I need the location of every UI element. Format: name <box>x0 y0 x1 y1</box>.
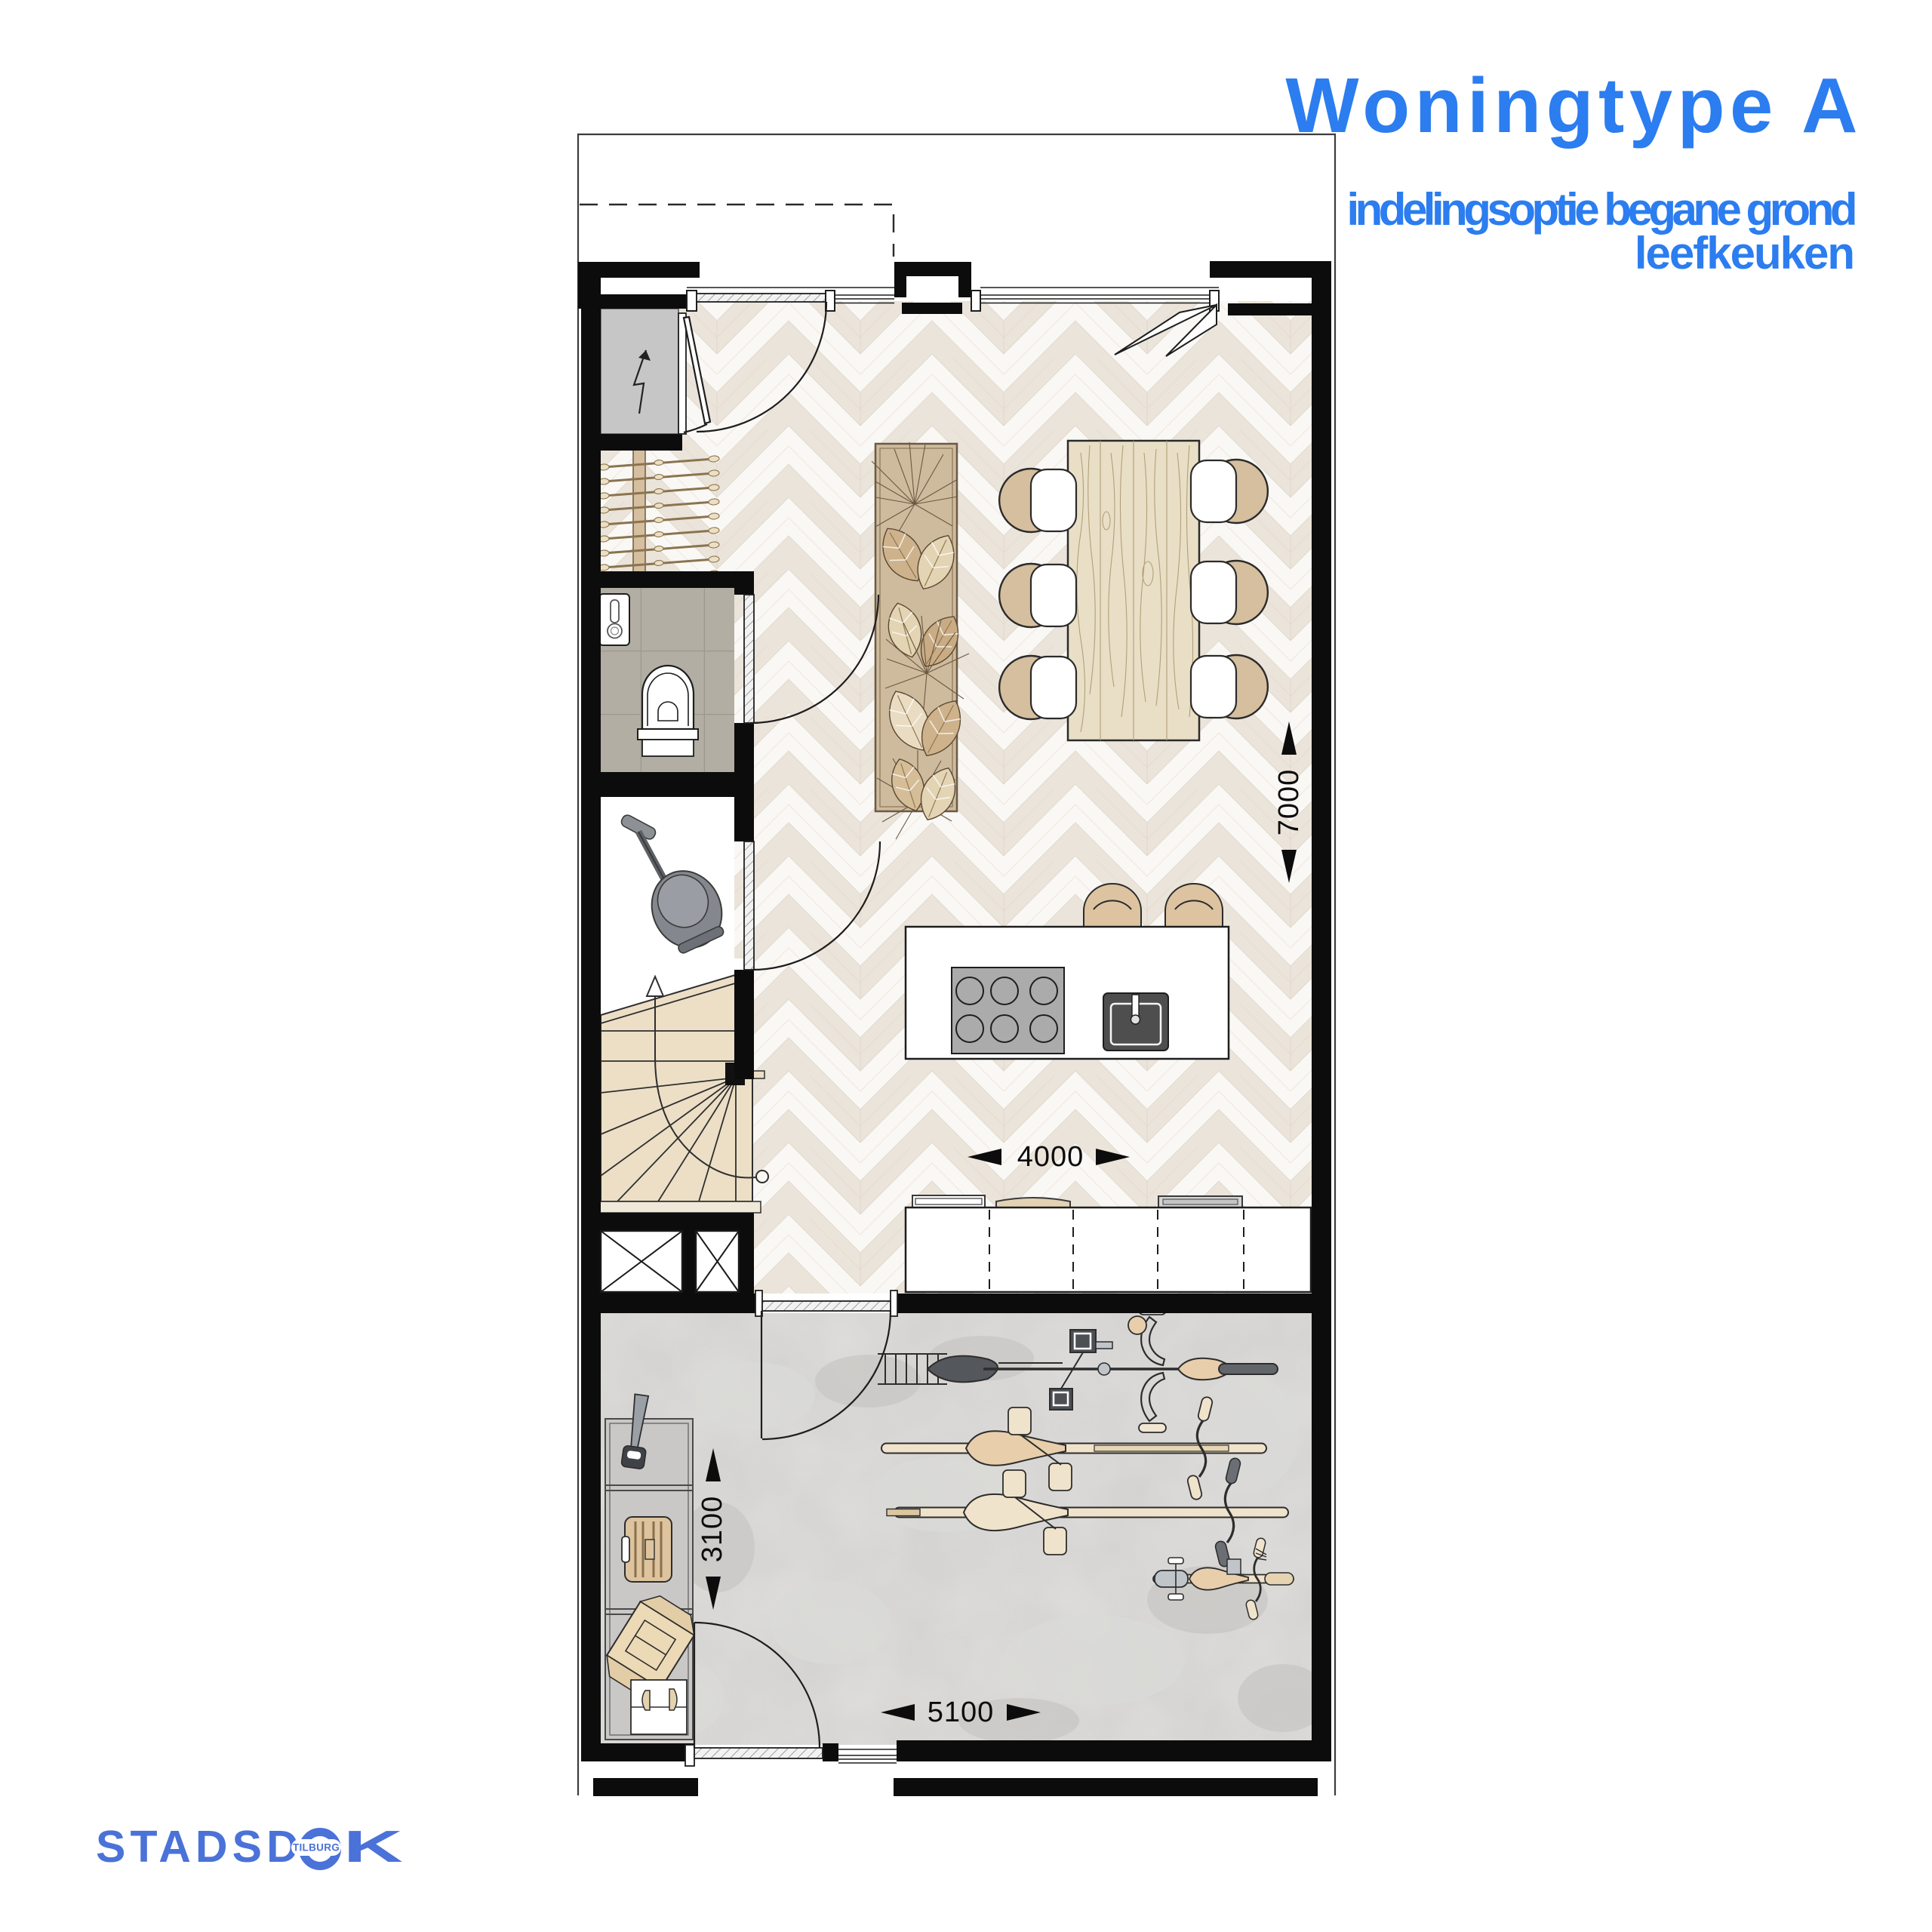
svg-text:TILBURG: TILBURG <box>293 1842 340 1854</box>
svg-text:5100: 5100 <box>928 1697 995 1728</box>
svg-text:3100: 3100 <box>697 1496 728 1563</box>
svg-text:7000: 7000 <box>1273 769 1305 836</box>
svg-text:K: K <box>343 1822 403 1872</box>
svg-text:leefkeuken: leefkeuken <box>1635 228 1854 278</box>
svg-text:indelingsoptie begane grond: indelingsoptie begane grond <box>1346 184 1854 235</box>
svg-text:Woningtype A: Woningtype A <box>1285 62 1863 149</box>
svg-text:STADSD: STADSD <box>96 1822 303 1872</box>
svg-text:4000: 4000 <box>1017 1141 1084 1173</box>
